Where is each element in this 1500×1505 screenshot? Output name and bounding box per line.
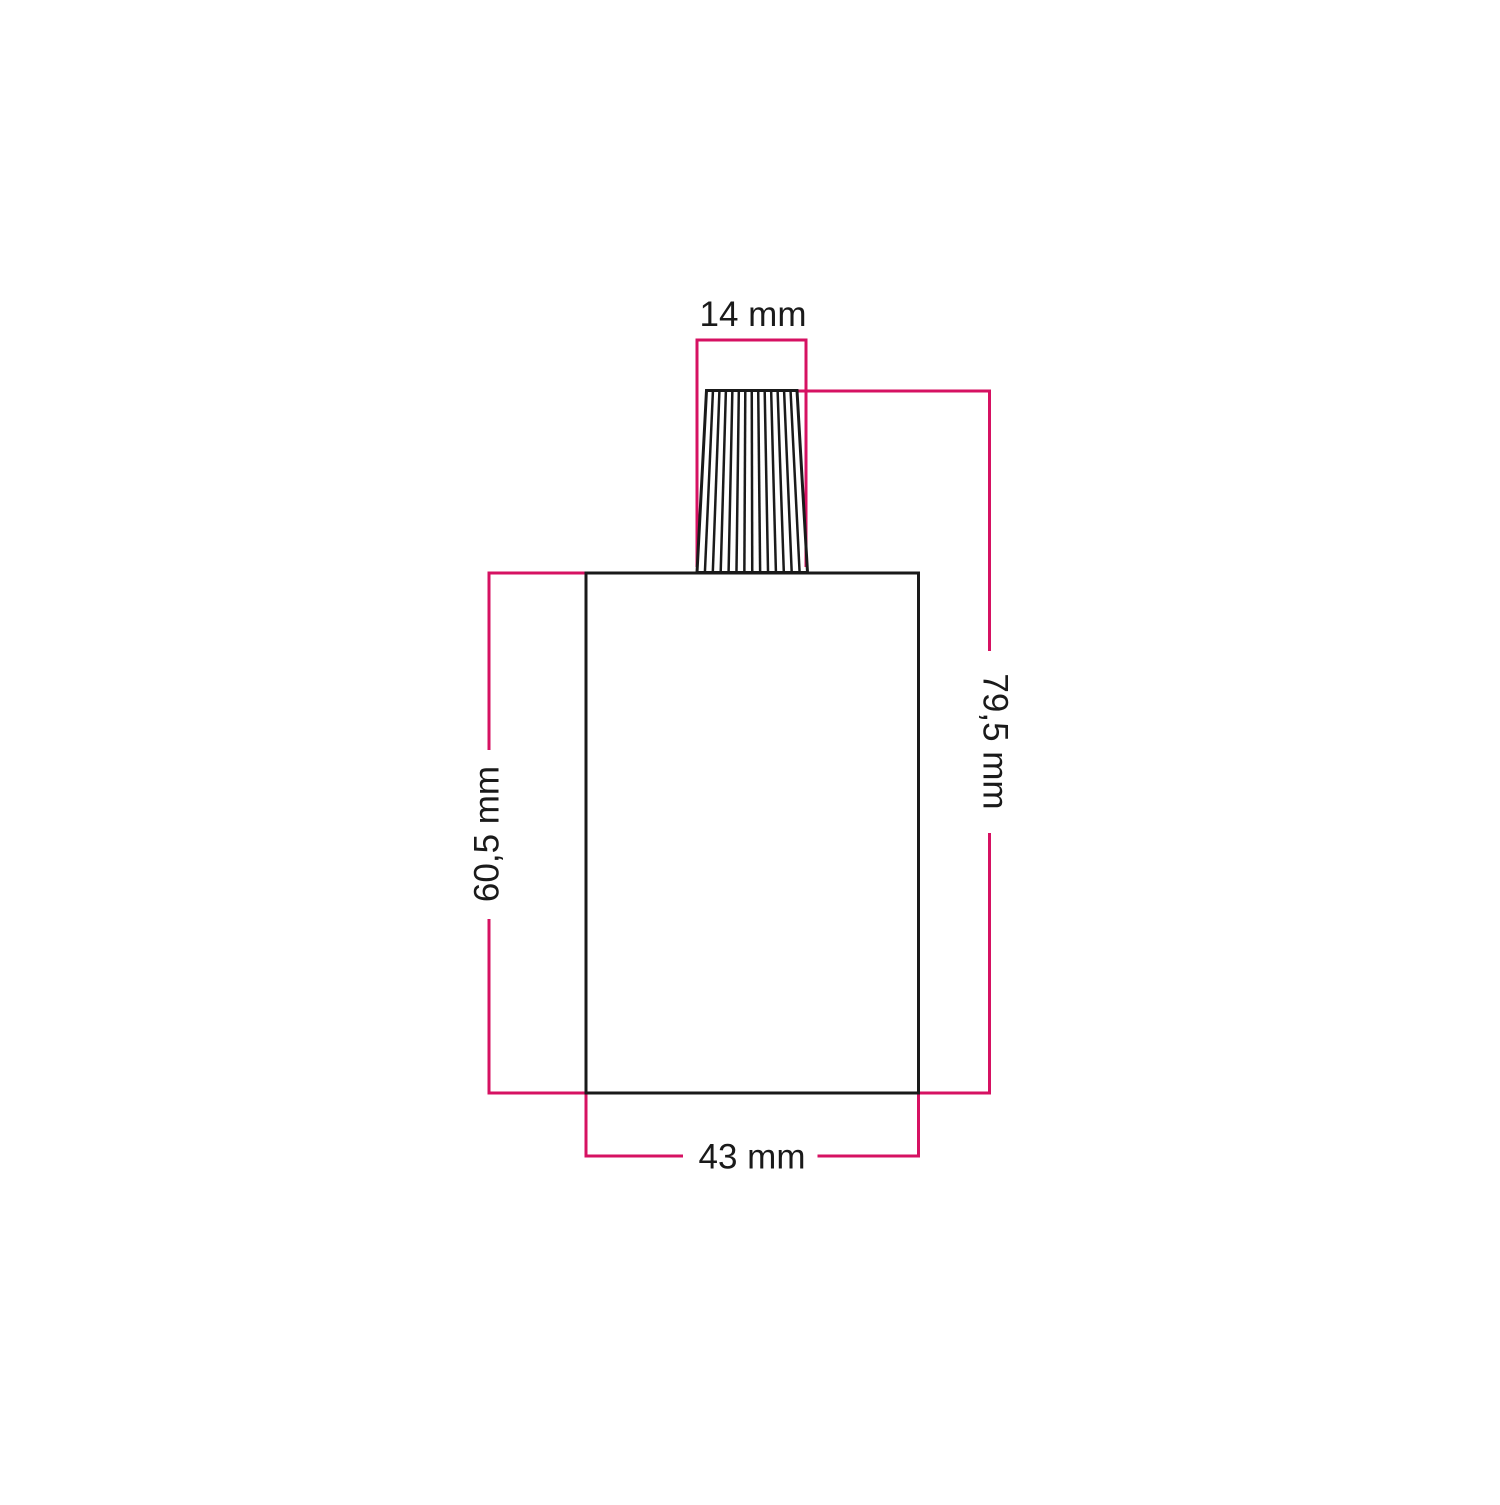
svg-text:60,5 mm: 60,5 mm [467, 766, 506, 902]
svg-text:79,5 mm: 79,5 mm [976, 673, 1015, 809]
svg-text:43 mm: 43 mm [699, 1138, 806, 1177]
svg-text:14 mm: 14 mm [700, 295, 807, 334]
